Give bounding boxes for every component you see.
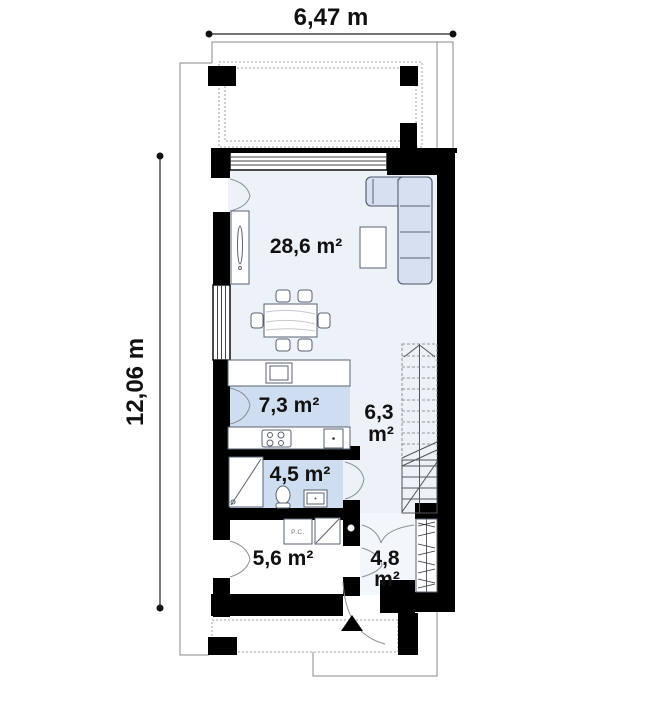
room-label-living: 28,6 m² [270,235,342,258]
dimension-top: 6,47 m [206,4,457,38]
boiler-label: P.C. [291,529,305,536]
room-label-entry-2: m² [374,568,400,591]
dining-chair [298,290,312,302]
toilet [276,486,290,508]
bathroom-sink [304,490,327,507]
room-label-entry-1: 4,8 [370,547,400,570]
entry-porch [212,620,398,652]
cooktop [262,430,291,447]
entrance-arrow-icon [341,615,363,631]
room-label-stair-hall-2: m² [368,423,394,446]
dining-chair [251,313,263,328]
floor-plan-image: P.C. 28,6 m² 7,3 m² 6,3 m² 4,5 m² 5,6 m²… [0,0,652,701]
dining-chair [318,313,330,328]
kitchen-counter-bottom [228,427,350,449]
room-label-utility: 5,6 m² [253,547,314,570]
dining-chair [276,290,290,302]
shower [229,457,263,507]
coffee-table [360,227,386,268]
kitchen-counter-top [228,360,350,386]
radiator [231,211,249,284]
room-label-kitchen: 7,3 m² [259,394,320,417]
chimney-flue [348,525,355,532]
window-top [230,152,387,170]
window-left [213,285,230,360]
dimension-left: 12,06 m [122,153,164,612]
dining-chair [276,339,290,351]
dimension-width-label: 6,47 m [294,4,369,31]
room-label-stair-hall-1: 6,3 [364,401,393,424]
room-label-bathroom: 4,5 m² [270,463,331,486]
dimension-height-label: 12,06 m [122,338,149,426]
boiler-unit: P.C. [284,519,312,544]
floor-plan-svg: P.C. 28,6 m² 7,3 m² 6,3 m² 4,5 m² 5,6 m²… [0,0,652,701]
terrace [219,62,422,147]
wardrobe [416,519,437,592]
dining-chair [298,339,312,351]
water-heater [315,518,340,544]
